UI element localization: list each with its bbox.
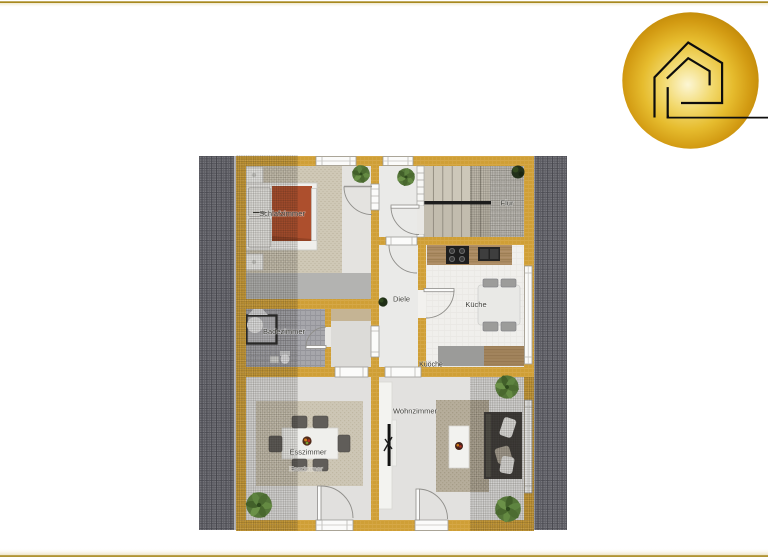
svg-text:Wohnzimmer: Wohnzimmer (393, 407, 438, 416)
svg-text:Esszimmer: Esszimmer (289, 448, 327, 457)
svg-text:Badezimmer: Badezimmer (263, 327, 306, 336)
svg-text:Küche: Küche (465, 300, 486, 309)
svg-text:Schlafzimmer: Schlafzimmer (259, 209, 305, 218)
svg-text:Küöche: Küöche (419, 362, 443, 369)
svg-text:Esszimmer: Esszimmer (289, 466, 323, 473)
svg-text:Flur: Flur (501, 199, 514, 208)
svg-text:Diele: Diele (393, 295, 410, 304)
